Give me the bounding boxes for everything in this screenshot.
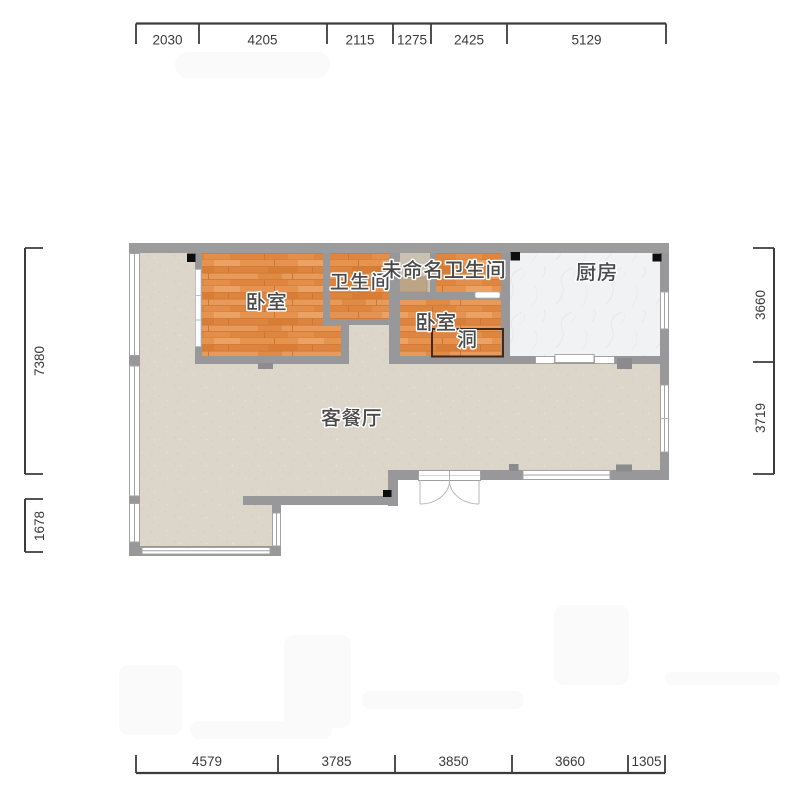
svg-text:3785: 3785 (321, 754, 351, 769)
svg-text:1305: 1305 (631, 754, 661, 769)
svg-text:4579: 4579 (192, 754, 222, 769)
svg-text:3660: 3660 (555, 754, 585, 769)
svg-text:3719: 3719 (753, 403, 768, 433)
svg-text:4205: 4205 (247, 33, 277, 48)
svg-text:2425: 2425 (454, 33, 484, 48)
svg-text:2115: 2115 (345, 33, 374, 48)
svg-text:2030: 2030 (152, 33, 182, 48)
svg-text:3850: 3850 (438, 754, 468, 769)
svg-text:3660: 3660 (753, 290, 768, 320)
svg-text:1678: 1678 (32, 511, 47, 541)
svg-text:7380: 7380 (32, 346, 47, 376)
svg-text:1275: 1275 (397, 33, 427, 48)
svg-text:5129: 5129 (571, 33, 601, 48)
